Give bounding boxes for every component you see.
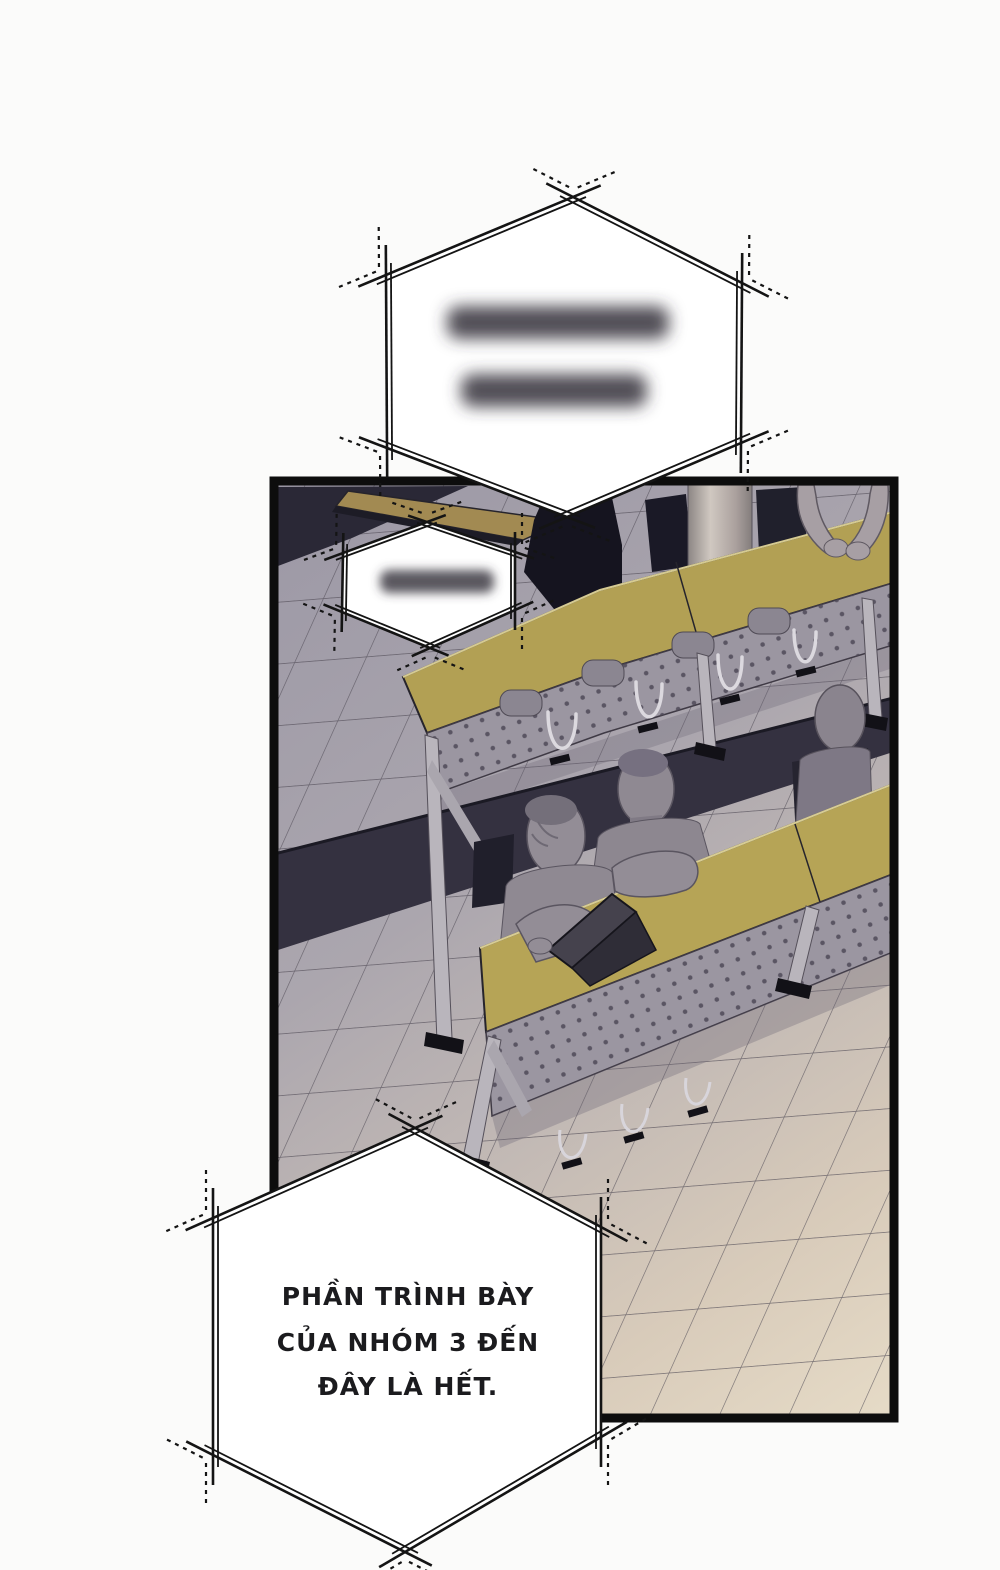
comic-page: PHẦN TRÌNH BÀY CỦA NHÓM 3 ĐẾN ĐÂY LÀ HẾT…	[0, 0, 1000, 1570]
bubble-text-line: CỦA NHÓM 3 ĐẾN	[277, 1324, 539, 1357]
comic-artwork: PHẦN TRÌNH BÀY CỦA NHÓM 3 ĐẾN ĐÂY LÀ HẾT…	[0, 0, 1000, 1570]
blurred-text	[380, 570, 494, 593]
bubble-text-line: PHẦN TRÌNH BÀY	[282, 1278, 535, 1311]
bubble-text-line: ĐÂY LÀ HẾT.	[318, 1368, 498, 1401]
chair-back	[645, 494, 692, 572]
